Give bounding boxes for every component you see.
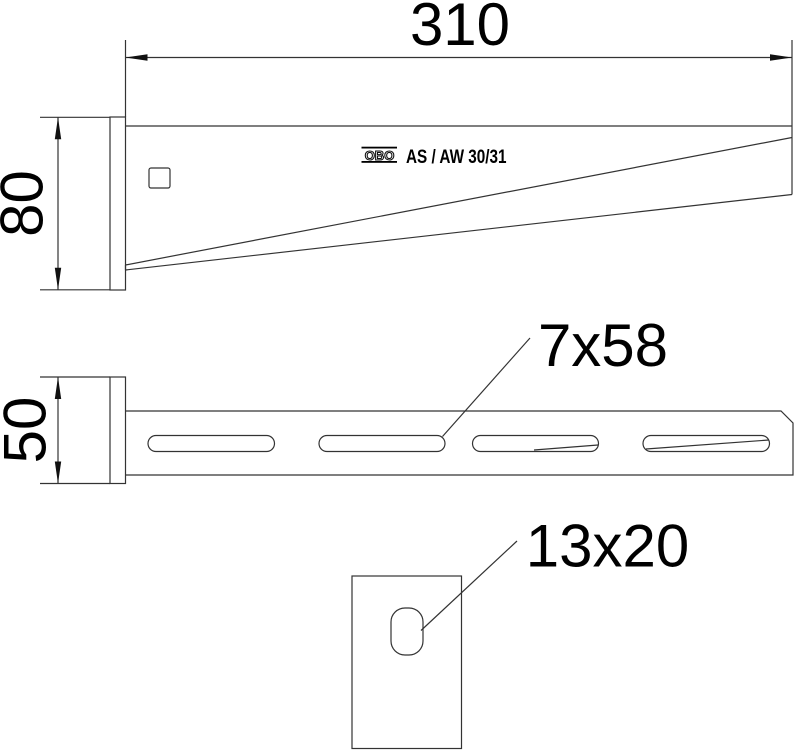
svg-text:50: 50 bbox=[0, 397, 59, 464]
svg-text:OBO: OBO bbox=[365, 148, 395, 163]
svg-text:80: 80 bbox=[0, 170, 56, 237]
svg-text:AS / AW 30/31: AS / AW 30/31 bbox=[406, 147, 507, 168]
svg-text:310: 310 bbox=[410, 0, 510, 58]
svg-text:13x20: 13x20 bbox=[526, 513, 689, 580]
svg-text:7x58: 7x58 bbox=[538, 312, 668, 379]
